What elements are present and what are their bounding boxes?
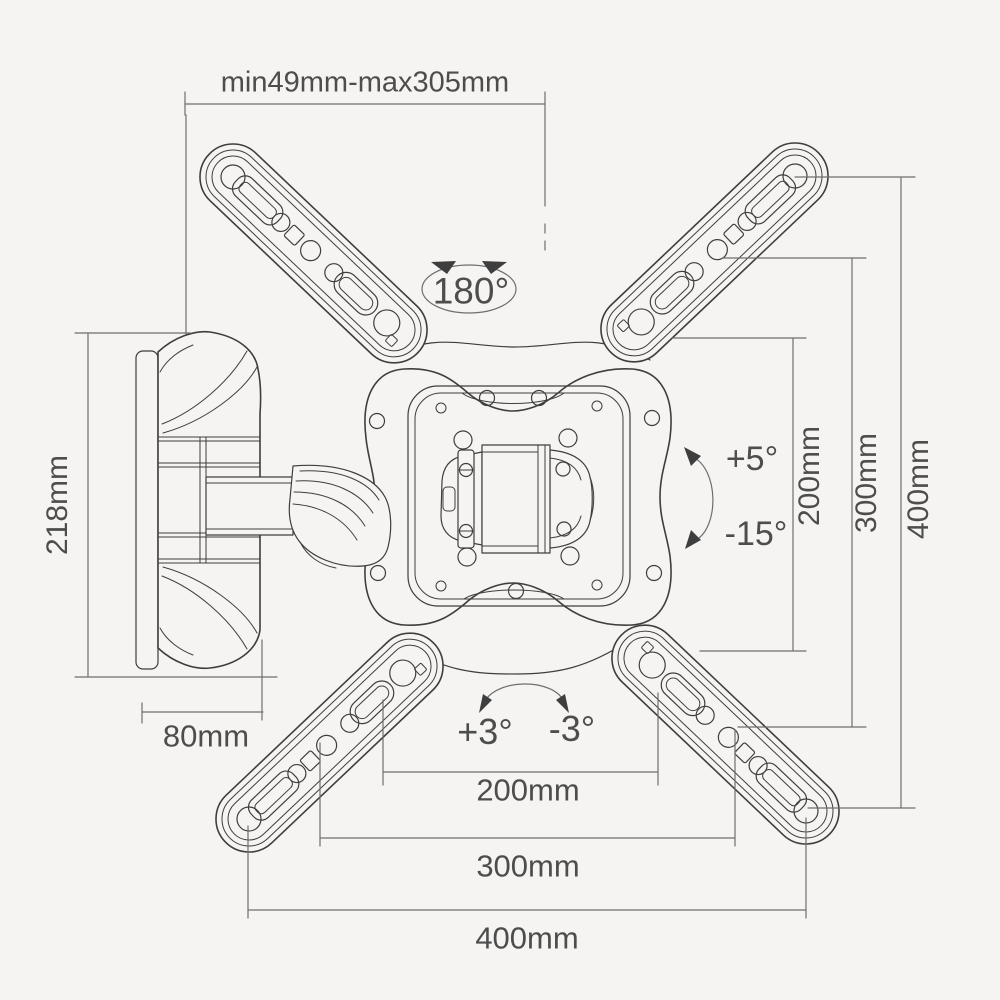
vesa-horizontal-400-label: 400mm xyxy=(475,923,578,954)
vesa-horizontal-300-label: 300mm xyxy=(476,851,579,882)
wall-plate-height-label: 218mm xyxy=(43,455,73,555)
vesa-vertical-400-label: 400mm xyxy=(904,439,934,539)
level-right-label: -3° xyxy=(549,711,595,747)
wall-plate-assembly xyxy=(136,332,391,669)
vesa-plate xyxy=(365,342,671,674)
vesa-vertical-300-label: 300mm xyxy=(852,433,882,533)
level-left-label: +3° xyxy=(457,714,512,750)
tilt-arrow-down xyxy=(685,530,701,549)
tilt-down-label: -15° xyxy=(725,517,788,551)
tv-wall-mount-dimension-diagram: min49mm-max305mm 180° +5° -15° 200mm 300… xyxy=(0,0,1000,1000)
tilt-up-label: +5° xyxy=(726,442,778,476)
vesa-vertical-200-label: 200mm xyxy=(795,426,825,526)
tilt-hinge xyxy=(441,445,594,553)
extension-range-label: min49mm-max305mm xyxy=(221,69,509,98)
vesa-horizontal-200-label: 200mm xyxy=(476,775,579,806)
swivel-range-label: 180° xyxy=(433,273,510,310)
arm-depth-label: 80mm xyxy=(163,721,249,752)
tilt-arrow-up xyxy=(684,447,701,466)
